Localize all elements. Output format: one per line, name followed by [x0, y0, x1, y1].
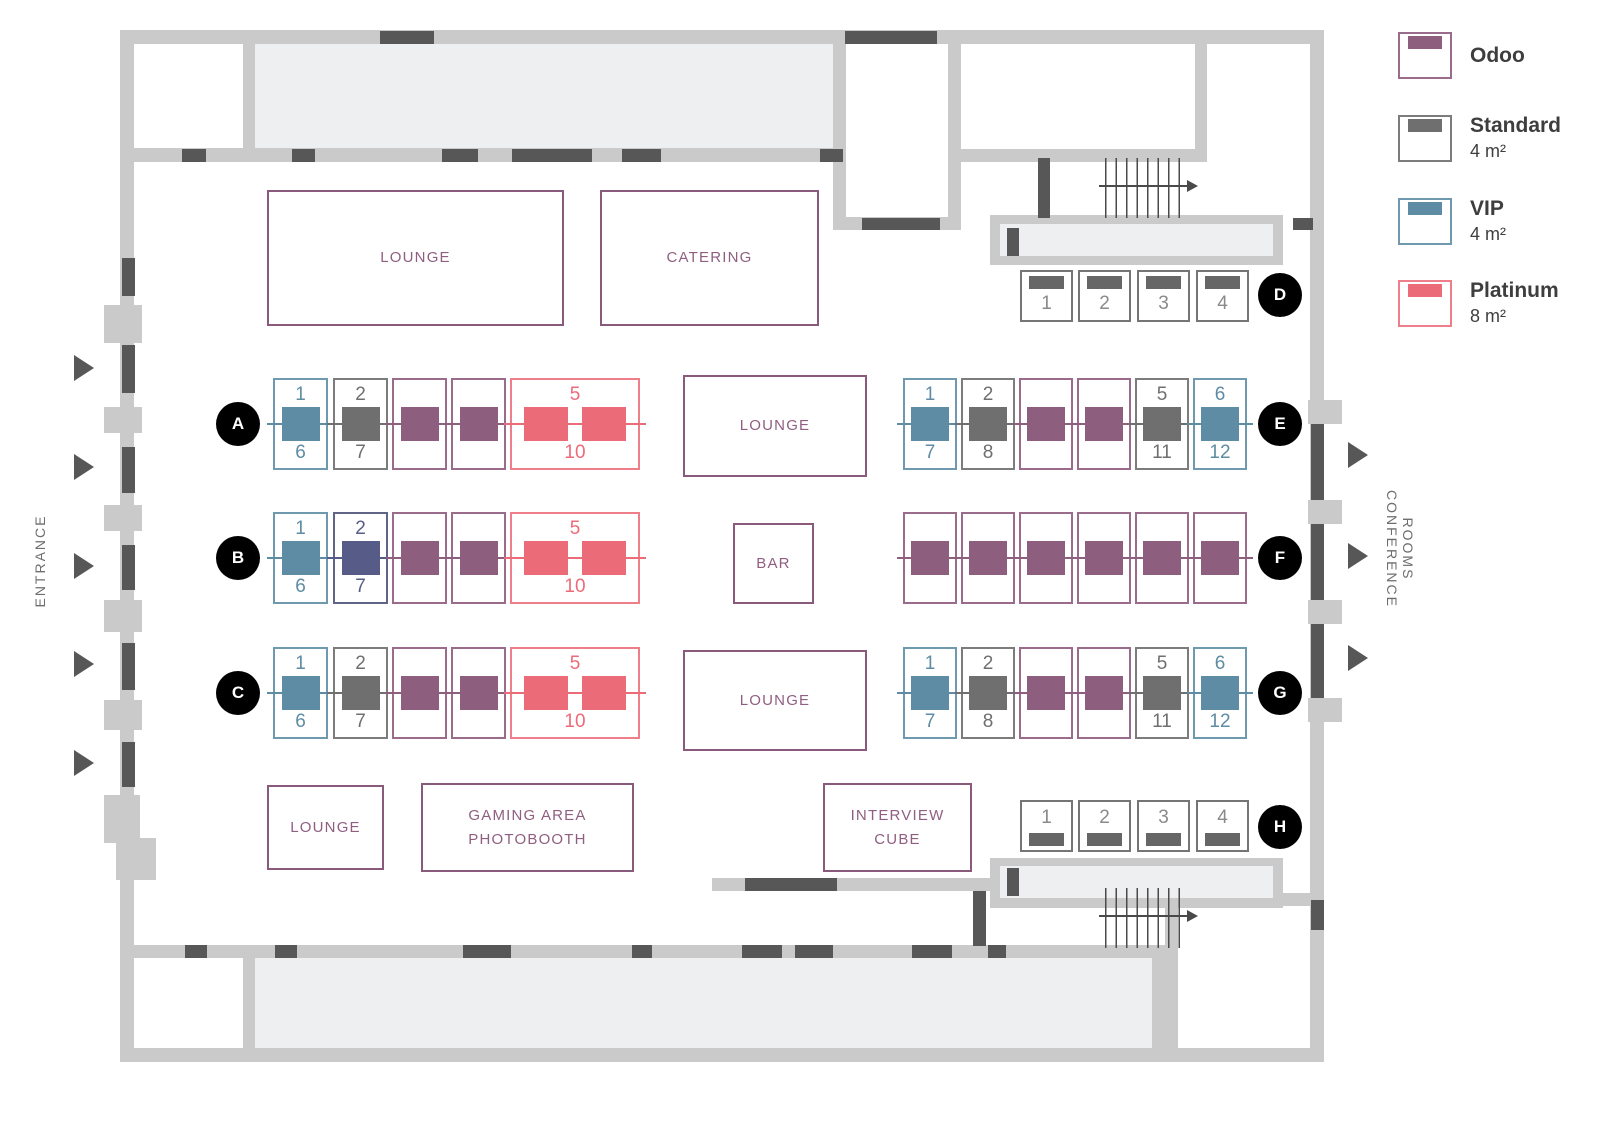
booth-stand-icon [1029, 833, 1064, 846]
booth-H-1[interactable]: 1 [1020, 800, 1073, 852]
stairs-bottom-arrow [1099, 915, 1187, 917]
door-segment [1311, 624, 1324, 698]
interview-cube-line1: INTERVIEW [851, 804, 945, 828]
door-segment [1007, 868, 1019, 896]
booth-stand-icon [1027, 541, 1065, 575]
booth-stand-icon [524, 407, 568, 441]
conference-arrow-icon [1348, 442, 1368, 468]
bar-label: BAR [756, 552, 790, 576]
booth-C-2-7[interactable]: 27 [333, 647, 388, 739]
door-segment [745, 878, 837, 891]
booth-number: 2 [1080, 293, 1129, 315]
room-area [255, 44, 833, 148]
booth-number-top: 5 [512, 653, 638, 675]
booth-stand-icon [460, 676, 498, 710]
door-segment [122, 447, 135, 493]
booth-G-2-8[interactable]: 28 [961, 647, 1015, 739]
booth-D-4[interactable]: 4 [1196, 270, 1249, 322]
entrance-arrow-icon [74, 454, 94, 480]
booth-A-2-7[interactable]: 27 [333, 378, 388, 470]
floor-plan: ENTRANCE ROOMS CONFERENCE LOUNGE CATERIN… [0, 0, 1600, 1124]
legend-item-vip: VIP4 m² [1398, 197, 1506, 245]
wall-segment [948, 44, 961, 230]
booth-stand-icon [282, 407, 320, 441]
booth-C-odoo-3[interactable] [392, 647, 447, 739]
booth-stand-icon [1143, 541, 1181, 575]
door-segment [862, 218, 940, 230]
legend-texts: VIP4 m² [1470, 197, 1506, 245]
booth-stand-icon [1027, 407, 1065, 441]
booth-number: 1 [1022, 293, 1071, 315]
booth-number-bottom: 6 [275, 576, 326, 598]
booth-G-odoo-4[interactable] [1077, 647, 1131, 739]
legend-item-odoo: Odoo [1398, 32, 1525, 79]
booth-stand-icon [969, 676, 1007, 710]
legend-label: Standard [1470, 114, 1561, 138]
door-segment [795, 945, 833, 958]
pillar [116, 838, 156, 880]
interview-cube-line2: CUBE [874, 828, 920, 852]
row-label-B: B [216, 536, 260, 580]
booth-H-3[interactable]: 3 [1137, 800, 1190, 852]
stairs-top-icon [1105, 158, 1181, 218]
booth-number: 1 [1022, 807, 1071, 829]
pillar [1308, 400, 1342, 424]
booth-C-1-6[interactable]: 16 [273, 647, 328, 739]
booth-stand-icon [342, 676, 380, 710]
booth-stand-icon [524, 676, 568, 710]
door-segment [122, 258, 135, 296]
door-segment [122, 345, 135, 393]
room-area [255, 958, 1152, 1048]
pillar [104, 600, 142, 632]
legend-size: 8 m² [1470, 306, 1559, 327]
booth-number-top: 2 [335, 384, 386, 406]
pillar [104, 795, 140, 843]
lounge-bottom-label: LOUNGE [290, 816, 361, 840]
booth-stand-icon [401, 676, 439, 710]
pillar [1308, 500, 1342, 524]
booth-number: 2 [1080, 807, 1129, 829]
booth-number-top: 1 [905, 384, 955, 406]
booth-G-6-12[interactable]: 612 [1193, 647, 1247, 739]
booth-stand-icon [524, 541, 568, 575]
booth-number: 3 [1139, 807, 1188, 829]
wall-segment [833, 44, 846, 230]
pillar [104, 407, 142, 433]
door-segment [1311, 524, 1324, 600]
booth-number-top: 1 [905, 653, 955, 675]
booth-number-bottom: 10 [512, 576, 638, 598]
conference-rooms-sign: ROOMS CONFERENCE [1384, 474, 1416, 624]
conference-rooms-line1: CONFERENCE [1384, 474, 1400, 624]
door-segment [442, 149, 478, 162]
booth-F-odoo-2[interactable] [961, 512, 1015, 604]
wall-segment [1152, 958, 1165, 1048]
bar-area: BAR [733, 523, 814, 604]
booth-stand-icon [1146, 833, 1181, 846]
booth-number-top: 5 [1137, 653, 1187, 675]
row-label-F: F [1258, 536, 1302, 580]
catering-area: CATERING [600, 190, 819, 326]
booth-stand-icon [1087, 276, 1122, 289]
booth-F-odoo-5[interactable] [1135, 512, 1189, 604]
door-segment [275, 945, 297, 958]
booth-stand-icon [1201, 676, 1239, 710]
door-segment [820, 149, 843, 162]
door-segment [622, 149, 661, 162]
entrance-arrow-icon [74, 750, 94, 776]
booth-B-2-7[interactable]: 27 [333, 512, 388, 604]
booth-stand-icon [969, 407, 1007, 441]
booth-stand-icon [1029, 276, 1064, 289]
booth-number-bottom: 11 [1137, 711, 1187, 733]
booth-B-1-6[interactable]: 16 [273, 512, 328, 604]
booth-stand-icon [582, 676, 626, 710]
booth-stand-icon [1146, 276, 1181, 289]
booth-D-2[interactable]: 2 [1078, 270, 1131, 322]
gaming-area-line2: PHOTOBOOTH [468, 828, 586, 852]
booth-number-bottom: 11 [1137, 442, 1187, 464]
gaming-area: GAMING AREA PHOTOBOOTH [421, 783, 634, 872]
door-segment [1311, 900, 1324, 930]
row-label-G: G [1258, 671, 1302, 715]
booth-A-odoo-4[interactable] [451, 378, 506, 470]
lounge-bottom-area: LOUNGE [267, 785, 384, 870]
booth-number-bottom: 8 [963, 442, 1013, 464]
booth-number-bottom: 12 [1195, 442, 1245, 464]
legend-texts: Odoo [1470, 44, 1525, 68]
booth-number: 3 [1139, 293, 1188, 315]
booth-stand-icon [582, 541, 626, 575]
stairs-top-arrowhead-icon [1187, 180, 1198, 192]
row-label-E: E [1258, 402, 1302, 446]
legend-size: 4 m² [1470, 224, 1506, 245]
legend-texts: Platinum8 m² [1470, 279, 1559, 327]
booth-stand-icon [1087, 833, 1122, 846]
booth-E-odoo-3[interactable] [1019, 378, 1073, 470]
legend-item-platinum: Platinum8 m² [1398, 279, 1559, 327]
legend-label: VIP [1470, 197, 1506, 221]
lounge-center-upper-label: LOUNGE [740, 414, 811, 438]
booth-E-5-11[interactable]: 511 [1135, 378, 1189, 470]
legend-texts: Standard4 m² [1470, 114, 1561, 162]
booth-G-1-7[interactable]: 17 [903, 647, 957, 739]
booth-A-1-6[interactable]: 16 [273, 378, 328, 470]
booth-stand-icon [911, 541, 949, 575]
lounge-top-label: LOUNGE [380, 246, 451, 270]
booth-number-top: 5 [512, 518, 638, 540]
booth-stand-icon [582, 407, 626, 441]
booth-number-bottom: 6 [275, 442, 326, 464]
door-segment [632, 945, 652, 958]
lounge-top-area: LOUNGE [267, 190, 564, 326]
booth-stand-icon [401, 541, 439, 575]
booth-stand-icon [911, 407, 949, 441]
stairs-top-arrow [1099, 185, 1187, 187]
booth-number-bottom: 7 [335, 442, 386, 464]
booth-H-2[interactable]: 2 [1078, 800, 1131, 852]
entrance-arrow-icon [74, 651, 94, 677]
door-segment [1038, 158, 1050, 218]
legend-label: Platinum [1470, 279, 1559, 303]
booth-D-3[interactable]: 3 [1137, 270, 1190, 322]
pillar [1308, 698, 1342, 722]
booth-number-bottom: 7 [335, 711, 386, 733]
booth-number: 4 [1198, 293, 1247, 315]
door-segment [122, 545, 135, 590]
conference-arrow-icon [1348, 543, 1368, 569]
booth-stand-icon [1205, 276, 1240, 289]
legend-booth-bar [1408, 119, 1442, 132]
booth-F-odoo-3[interactable] [1019, 512, 1073, 604]
legend-booth-bar [1408, 36, 1442, 49]
wall-segment [1195, 44, 1207, 162]
booth-stand-icon [1201, 407, 1239, 441]
lounge-center-upper-area: LOUNGE [683, 375, 867, 477]
booth-D-1[interactable]: 1 [1020, 270, 1073, 322]
row-label-C: C [216, 671, 260, 715]
booth-number: 4 [1198, 807, 1247, 829]
booth-number-bottom: 7 [335, 576, 386, 598]
door-segment [1007, 228, 1019, 256]
booth-number-bottom: 6 [275, 711, 326, 733]
booth-number-bottom: 12 [1195, 711, 1245, 733]
booth-stand-icon [401, 407, 439, 441]
door-segment [292, 149, 315, 162]
door-segment [122, 742, 135, 787]
booth-number-bottom: 10 [512, 711, 638, 733]
booth-E-2-8[interactable]: 28 [961, 378, 1015, 470]
booth-number-top: 1 [275, 518, 326, 540]
booth-number-top: 2 [963, 384, 1013, 406]
stairs-bottom-arrowhead-icon [1187, 910, 1198, 922]
pillar [104, 305, 142, 343]
legend-standard-booth-icon [1398, 115, 1452, 162]
room-area [1000, 224, 1273, 256]
legend-odoo-booth-icon [1398, 32, 1452, 79]
pillar [104, 505, 142, 531]
booth-stand-icon [282, 676, 320, 710]
booth-number-top: 2 [963, 653, 1013, 675]
entrance-arrow-icon [74, 553, 94, 579]
entrance-sign: ENTRANCE [32, 486, 48, 636]
legend-item-standard: Standard4 m² [1398, 114, 1561, 162]
conference-rooms-line2: ROOMS [1400, 474, 1416, 624]
legend-vip-booth-icon [1398, 198, 1452, 245]
row-label-D: D [1258, 273, 1302, 317]
booth-stand-icon [1205, 833, 1240, 846]
booth-stand-icon [1085, 541, 1123, 575]
stairs-bottom-icon [1105, 888, 1181, 948]
door-segment [988, 945, 1006, 958]
booth-C-odoo-4[interactable] [451, 647, 506, 739]
booth-B-odoo-4[interactable] [451, 512, 506, 604]
door-segment [512, 149, 592, 162]
booth-C-5-10[interactable]: 510 [510, 647, 640, 739]
booth-number-bottom: 7 [905, 442, 955, 464]
booth-G-odoo-3[interactable] [1019, 647, 1073, 739]
booth-A-5-10[interactable]: 510 [510, 378, 640, 470]
booth-F-odoo-4[interactable] [1077, 512, 1131, 604]
booth-stand-icon [1085, 676, 1123, 710]
booth-number-top: 1 [275, 653, 326, 675]
booth-number-top: 5 [512, 384, 638, 406]
legend-booth-bar [1408, 202, 1442, 215]
booth-stand-icon [282, 541, 320, 575]
lounge-center-lower-label: LOUNGE [740, 689, 811, 713]
door-segment [380, 31, 434, 44]
wall-segment [243, 958, 255, 1048]
legend-label: Odoo [1470, 44, 1525, 68]
wall-segment [120, 1048, 1324, 1062]
booth-stand-icon [911, 676, 949, 710]
pillar [104, 700, 142, 730]
booth-stand-icon [1201, 541, 1239, 575]
booth-number-top: 6 [1195, 384, 1245, 406]
booth-E-1-7[interactable]: 17 [903, 378, 957, 470]
entrance-arrow-icon [74, 355, 94, 381]
booth-H-4[interactable]: 4 [1196, 800, 1249, 852]
wall-segment [134, 148, 846, 162]
booth-number-top: 6 [1195, 653, 1245, 675]
legend-size: 4 m² [1470, 141, 1561, 162]
booth-stand-icon [1085, 407, 1123, 441]
door-segment [185, 945, 207, 958]
booth-G-5-11[interactable]: 511 [1135, 647, 1189, 739]
booth-stand-icon [460, 407, 498, 441]
booth-number-top: 1 [275, 384, 326, 406]
booth-B-odoo-3[interactable] [392, 512, 447, 604]
booth-number-top: 5 [1137, 384, 1187, 406]
interview-cube-area: INTERVIEW CUBE [823, 783, 972, 872]
booth-B-5-10[interactable]: 510 [510, 512, 640, 604]
legend-platinum-booth-icon [1398, 280, 1452, 327]
booth-number-bottom: 8 [963, 711, 1013, 733]
door-segment [742, 945, 782, 958]
conference-arrow-icon [1348, 645, 1368, 671]
door-segment [463, 945, 511, 958]
door-segment [912, 945, 952, 958]
booth-number-bottom: 7 [905, 711, 955, 733]
booth-E-odoo-4[interactable] [1077, 378, 1131, 470]
booth-stand-icon [1143, 676, 1181, 710]
booth-stand-icon [1027, 676, 1065, 710]
booth-stand-icon [969, 541, 1007, 575]
door-segment [1311, 424, 1324, 500]
row-label-A: A [216, 402, 260, 446]
booth-F-odoo-6[interactable] [1193, 512, 1247, 604]
catering-label: CATERING [667, 246, 753, 270]
booth-E-6-12[interactable]: 612 [1193, 378, 1247, 470]
booth-number-top: 2 [335, 653, 386, 675]
door-segment [122, 643, 135, 690]
row-label-H: H [1258, 805, 1302, 849]
lounge-center-lower-area: LOUNGE [683, 650, 867, 751]
pillar [1308, 600, 1342, 624]
wall-segment [243, 44, 255, 148]
booth-stand-icon [342, 407, 380, 441]
booth-stand-icon [460, 541, 498, 575]
door-segment [973, 891, 986, 946]
booth-F-odoo-1[interactable] [903, 512, 957, 604]
wall-segment [120, 30, 1324, 44]
booth-stand-icon [342, 541, 380, 575]
door-segment [182, 149, 206, 162]
gaming-area-line1: GAMING AREA [468, 804, 586, 828]
door-segment [845, 31, 937, 44]
booth-stand-icon [1143, 407, 1181, 441]
booth-A-odoo-3[interactable] [392, 378, 447, 470]
booth-number-bottom: 10 [512, 442, 638, 464]
booth-number-top: 2 [335, 518, 386, 540]
legend-booth-bar [1408, 284, 1442, 297]
door-segment [1293, 218, 1313, 230]
